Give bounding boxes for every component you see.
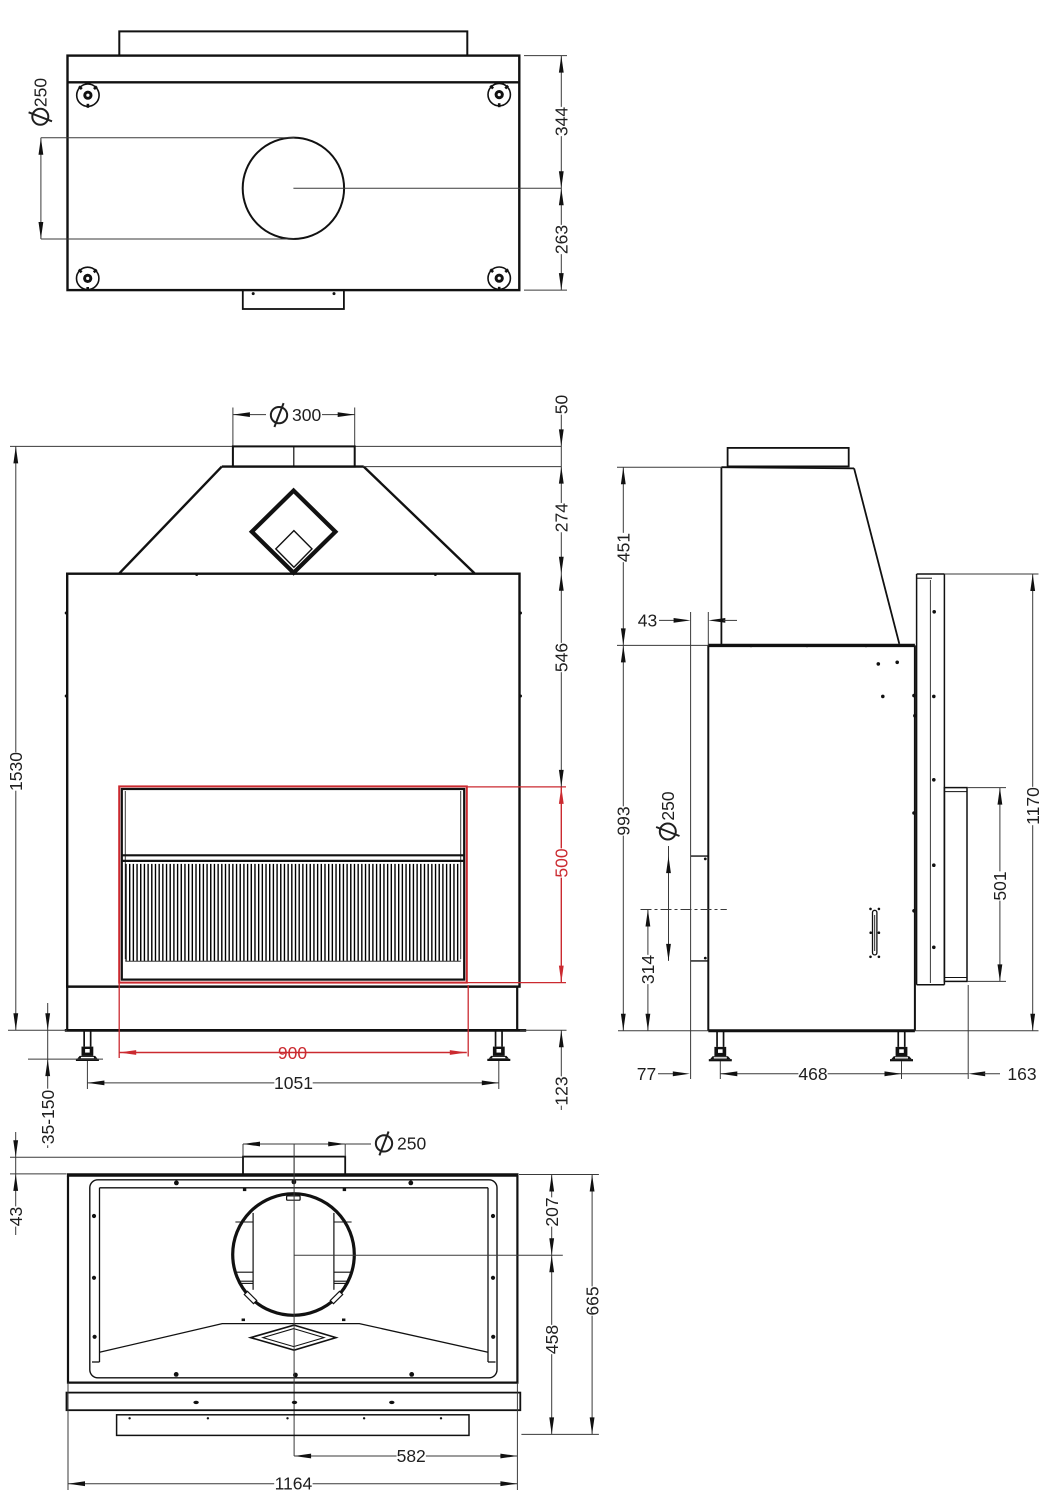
svg-text:458: 458 bbox=[542, 1325, 562, 1354]
svg-text:451: 451 bbox=[614, 533, 634, 562]
svg-text:207: 207 bbox=[542, 1197, 562, 1226]
svg-text:1164: 1164 bbox=[275, 1474, 313, 1494]
svg-text:314: 314 bbox=[638, 955, 658, 984]
svg-text:77: 77 bbox=[637, 1064, 656, 1084]
svg-text:1170: 1170 bbox=[1023, 787, 1043, 825]
svg-text:665: 665 bbox=[582, 1286, 602, 1315]
svg-text:900: 900 bbox=[278, 1043, 307, 1063]
svg-text:993: 993 bbox=[614, 806, 634, 835]
svg-text:250: 250 bbox=[658, 791, 678, 820]
svg-text:250: 250 bbox=[397, 1133, 426, 1153]
svg-text:274: 274 bbox=[552, 503, 572, 532]
svg-text:500: 500 bbox=[552, 848, 572, 877]
svg-text:43: 43 bbox=[6, 1207, 26, 1226]
svg-text:300: 300 bbox=[292, 405, 321, 425]
svg-text:501: 501 bbox=[990, 871, 1010, 900]
svg-text:250: 250 bbox=[31, 78, 51, 107]
svg-text:123: 123 bbox=[552, 1076, 572, 1105]
svg-text:1051: 1051 bbox=[274, 1073, 313, 1093]
svg-text:344: 344 bbox=[552, 107, 572, 136]
svg-text:1530: 1530 bbox=[6, 752, 26, 791]
svg-text:163: 163 bbox=[1007, 1064, 1036, 1084]
svg-text:50: 50 bbox=[552, 395, 572, 415]
svg-text:468: 468 bbox=[798, 1064, 827, 1084]
svg-text:582: 582 bbox=[397, 1446, 426, 1466]
svg-text:546: 546 bbox=[552, 643, 572, 672]
svg-text:35-150: 35-150 bbox=[38, 1089, 58, 1144]
svg-text:43: 43 bbox=[638, 611, 657, 631]
svg-text:263: 263 bbox=[552, 225, 572, 254]
